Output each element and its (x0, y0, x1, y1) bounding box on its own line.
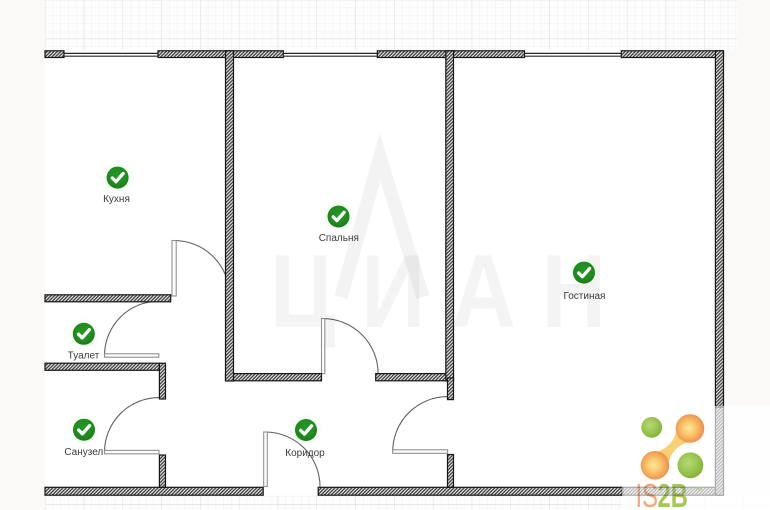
svg-text:Спальня: Спальня (319, 233, 359, 244)
svg-text:Гостиная: Гостиная (564, 291, 606, 302)
svg-text:Санузел: Санузел (64, 447, 103, 458)
svg-text:Кухня: Кухня (103, 194, 130, 205)
svg-text:™: ™ (694, 485, 703, 495)
svg-text:Коридор: Коридор (285, 448, 325, 459)
svg-text:Туалет: Туалет (68, 350, 100, 361)
